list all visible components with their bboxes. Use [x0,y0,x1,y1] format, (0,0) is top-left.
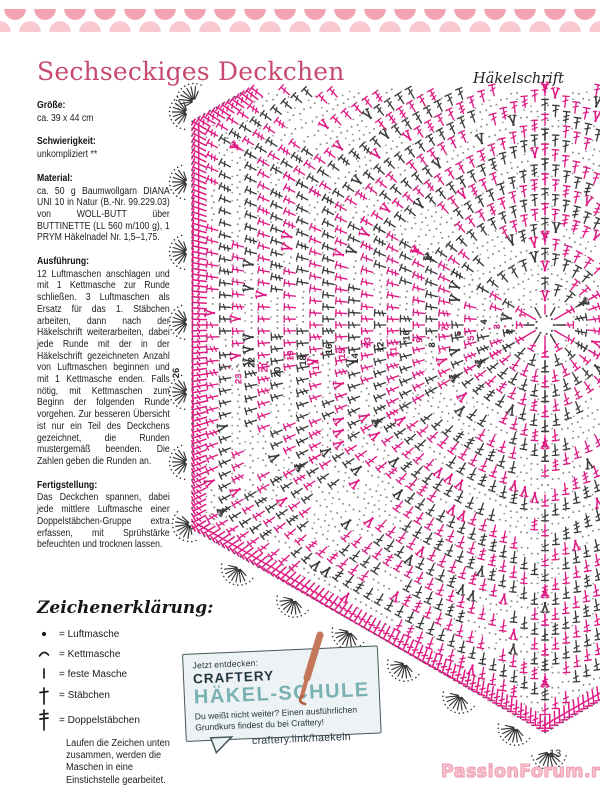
staebchen-cross-icon [37,684,55,708]
round-number: 8 [427,342,438,347]
round-number: 17 [311,360,322,371]
info-section: Material:ca. 50 g Baumwollgarn DIANA UNI… [37,173,170,244]
info-section: Ausführung:12 Luftmaschen anschlagen und… [37,256,170,468]
round-number: 10 [401,330,412,341]
legend-item-label: = feste Masche [59,669,127,680]
round-number: 12 [376,342,387,353]
legend-symbol [37,662,59,686]
info-section: Größe:ca. 39 x 44 cm [37,100,170,124]
legend-item-label: = Kettmasche [59,649,120,660]
legend-item: = Doppelstäbchen [37,707,187,733]
info-section-text: ca. 39 x 44 cm [37,113,170,125]
crochet-hook-icon [292,628,336,716]
pattern-info-column: Größe:ca. 39 x 44 cmSchwierigkeit:unkomp… [37,100,170,563]
round-number: 14 [350,353,361,364]
round-number: 23 [234,373,245,384]
symbol-legend: Zeichenerklärung: = Luftmasche= Kettmasc… [37,598,187,787]
info-section: Schwierigkeit:unkompliziert ** [37,136,170,160]
legend-symbol [37,708,59,732]
legend-items: = Luftmasche= Kettmasche= feste Masche= … [37,624,187,733]
info-section-label: Material: [37,173,170,185]
speech-bubble-tail [209,735,236,754]
info-section-text: 12 Luftmaschen anschlagen und mit 1 Kett… [37,269,170,468]
info-section-label: Schwierigkeit: [37,136,170,148]
round-number: 3 [492,324,503,329]
info-section-label: Größe: [37,100,170,112]
round-number: 21 [260,361,271,372]
round-number: 7 [440,326,451,331]
legend-item: = feste Masche [37,664,187,684]
info-section-text: unkompliziert ** [37,149,170,161]
info-section-label: Ausführung: [37,256,170,268]
legend-item-label: = Luftmasche [59,629,119,640]
legend-symbol [37,684,59,708]
round-number: 15 [337,348,348,359]
round-number: 20 [272,367,283,378]
promo-card: Jetzt entdecken: CRAFTERY HÄKEL-SCHULE D… [182,654,382,742]
promo-speech-bubble: Jetzt entdecken: CRAFTERY HÄKEL-SCHULE D… [182,645,382,741]
round-number: 22 [247,357,258,368]
round-number: 18 [298,355,309,366]
round-number: 4 [479,319,490,325]
legend-item-label: = Stäbchen [59,690,110,701]
chart-type-label: Häkelschrift [473,71,564,87]
feste-masche-bar-icon [37,662,55,686]
info-section-text: ca. 50 g Baumwollgarn DIANA UNI 10 in Na… [37,186,170,245]
info-section-label: Fertigstellung: [37,480,170,492]
round-number: 9 [414,338,425,343]
legend-note: Laufen die Zeichen unten zusammen, werde… [66,738,178,787]
round-number: 5 [466,335,477,341]
page-number: 13 [549,748,561,760]
round-number: 1 [518,312,529,318]
info-section: Fertigstellung:Das Deckchen spannen, dab… [37,480,170,551]
round-number: 2 [505,329,516,334]
round-number-outer: 26 [171,368,182,379]
legend-item: = Kettmasche [37,644,187,664]
legend-item-label: = Doppelstäbchen [59,715,140,726]
round-number: 13 [363,337,374,348]
round-number: 11 [389,346,400,357]
magazine-page: 123456789101112131415161718192021222326 … [0,0,600,800]
watermark: PassionForum.ru [441,762,600,782]
round-number: 16 [324,344,335,355]
legend-item: = Luftmasche [37,624,187,644]
round-number: 6 [453,331,464,336]
round-number: 19 [285,350,296,361]
info-section-text: Das Deckchen spannen, dabei jede mittler… [37,492,170,551]
promo-body: Du weißt nicht weiter? Einen ausführlich… [195,704,372,733]
legend-item: = Stäbchen [37,684,187,707]
page-title: Sechseckiges Deckchen [37,57,345,86]
doppelstaebchen-cross-icon [37,708,55,732]
legend-title: Zeichenerklärung: [37,598,187,618]
